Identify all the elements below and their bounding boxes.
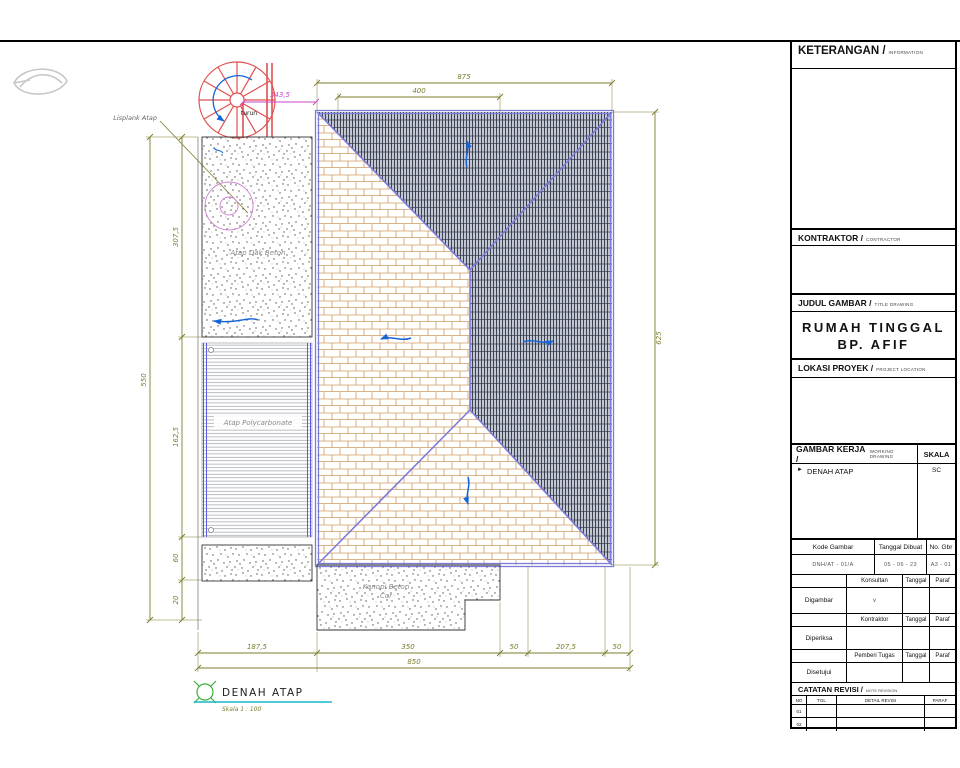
lokasi-body [792,378,955,445]
kode-header-row: Kode Gambar Tanggal Dibuat No. Gbr [792,540,955,555]
rev-detail-header: DETAIL REVISI [836,696,924,704]
dim-bottom-1: 187,5 [247,643,268,651]
dim-left-4: 20 [172,595,180,604]
dim-left-3: 60 [172,553,180,562]
sign-header-3: Pemberi Tugas Tanggal Paraf [792,650,955,663]
title-block: KETERANGAN / INFORMATION KONTRAKTOR / CO… [790,40,957,729]
sheet-bullet-icon: ► [797,467,803,473]
lokasi-sub: PROJECT LOCATION [876,367,926,372]
kontraktor-label: KONTRAKTOR / [798,233,863,243]
tanggal-dibuat-header: Tanggal Dibuat [874,540,926,554]
dim-left-outer: 550 [140,373,148,387]
view-marker-icon [194,681,216,703]
rev-row-01: 01 [792,705,955,718]
roof-plan-drawing: turun 343,5 Lisplank Atap Atap Dak Beton [0,0,790,768]
dim-bottom-3: 50 [510,643,519,651]
sign-value-1: Digambar v [792,588,955,614]
paraf-header-2: Paraf [929,614,955,626]
rev-tgl-header: TGL [806,696,836,704]
rev-row-02: 02 [792,718,955,731]
kanopi-area [317,565,500,630]
kontraktor-body [792,246,955,295]
drawing-title: DENAH ATAP [222,687,303,699]
dim-left-2: 162,5 [172,426,180,447]
sign-header-1: Konsultan Tanggal Paraf [792,575,955,588]
keterangan-sub: INFORMATION [889,50,923,55]
catatan-sub: NOTE REVISION [866,688,897,693]
judul-sub: TITLE DRAWING [875,302,914,307]
kontraktor-header: KONTRAKTOR / CONTRACTOR [792,230,955,246]
company-logo [14,69,67,94]
sign-value-2: Diperiksa [792,627,955,650]
dim-bottom-5: 50 [613,643,622,651]
kode-value-row: DNH/AT - 01/A 05 - 06 - 23 A3 - 01 [792,555,955,575]
catatan-cols: NO TGL DETAIL REVISI PARAF [792,696,955,705]
tanggal-dibuat-value: 05 - 06 - 23 [874,555,926,574]
spiral-stair [199,62,275,138]
gambar-kerja-sub: WORKING DRAWING [870,449,917,459]
dim-left-1: 307,5 [172,226,180,247]
rev-paraf-header: PARAF [924,696,955,704]
pemberi-tugas-header: Pemberi Tugas [846,650,902,662]
kontraktor-role-header: Kontraktor [846,614,902,626]
polycarbonate-label: Atap Polycarbonate [223,419,293,427]
drawing-title-group: DENAH ATAP Skala 1 : 100 [194,681,332,713]
digambar-mark: v [846,588,902,613]
kode-gambar-header: Kode Gambar [792,540,874,554]
rev-row-01-no: 01 [792,705,806,717]
main-hip-roof [316,111,614,567]
polycarbonate-area [202,343,312,537]
konsultan-header: Konsultan [846,575,902,587]
digambar-label: Digambar [792,588,846,613]
dim-bottom-4: 207,5 [556,643,577,651]
sheet-scale: SC [917,464,955,538]
rev-no-header: NO [792,696,806,704]
skala-header: SKALA [917,445,955,463]
tanggal-header-2: Tanggal [902,614,929,626]
sheet-list: ► DENAH ATAP SC [792,464,955,540]
sheet-canvas: turun 343,5 Lisplank Atap Atap Dak Beton [0,0,960,768]
dim-top-outer: 875 [457,73,471,81]
stair-label: turun [241,110,257,117]
project-title-line1: RUMAH TINGGAL [792,319,955,336]
lokasi-label: LOKASI PROYEK / [798,363,873,373]
keterangan-body [792,69,955,230]
keterangan-header: KETERANGAN / INFORMATION [792,42,955,69]
sign-header-2: Kontraktor Tanggal Paraf [792,614,955,627]
project-title-line2: BP. AFIF [792,336,955,353]
kode-gambar-value: DNH/AT - 01/A [792,555,874,574]
disetujui-label: Disetujui [792,663,846,682]
dim-right: 625 [655,331,663,345]
gambar-kerja-label: GAMBAR KERJA / [796,445,867,464]
dim-top-inner: 400 [412,87,426,95]
no-gbr-header: No. Gbr [926,540,955,554]
lower-deck-strip [202,545,312,581]
gambar-kerja-header: GAMBAR KERJA / WORKING DRAWING SKALA [792,445,955,464]
lisplank-label: Lisplank Atap [113,114,157,122]
keterangan-label: KETERANGAN / [798,45,886,57]
catatan-label: CATATAN REVISI / [798,685,863,694]
sheet-name: DENAH ATAP [807,467,853,476]
paraf-header-3: Paraf [929,650,955,662]
rev-row-02-no: 02 [792,718,806,731]
kontraktor-sub: CONTRACTOR [866,237,901,242]
judul-label: JUDUL GAMBAR / [798,298,872,308]
drawing-scale: Skala 1 : 100 [222,706,261,713]
catatan-header: CATATAN REVISI / NOTE REVISION [792,683,955,696]
dim-bottom-2: 350 [401,643,415,651]
kanopi-label-2: Cor [380,592,393,600]
lokasi-header: LOKASI PROYEK / PROJECT LOCATION [792,360,955,378]
paraf-header-1: Paraf [929,575,955,587]
kanopi-label-1: Kanopi Beton [363,583,410,591]
stair-dimension-label: 343,5 [270,91,291,99]
tanggal-header-1: Tanggal [902,575,929,587]
diperiksa-label: Diperiksa [792,627,846,649]
tanggal-header-3: Tanggal [902,650,929,662]
sign-value-3: Disetujui [792,663,955,683]
dak-beton-label: Atap Dak Beton [229,249,285,257]
dim-bottom-total: 850 [407,658,421,666]
no-gbr-value: A3 - 01 [926,555,955,574]
project-title: RUMAH TINGGAL BP. AFIF [792,312,955,360]
judul-header: JUDUL GAMBAR / TITLE DRAWING [792,295,955,312]
